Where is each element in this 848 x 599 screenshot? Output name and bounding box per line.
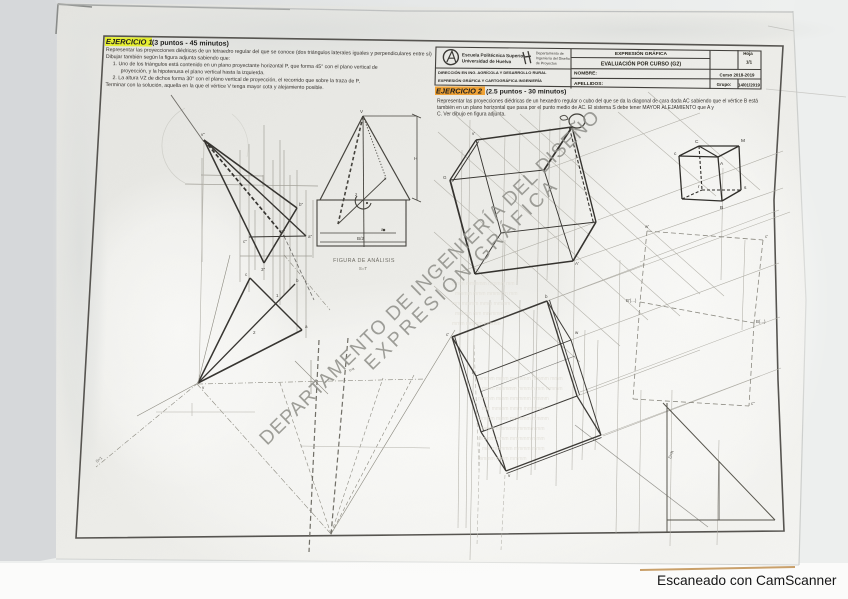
svg-text:Escaneado con CamScanner: Escaneado con CamScanner <box>657 573 837 588</box>
